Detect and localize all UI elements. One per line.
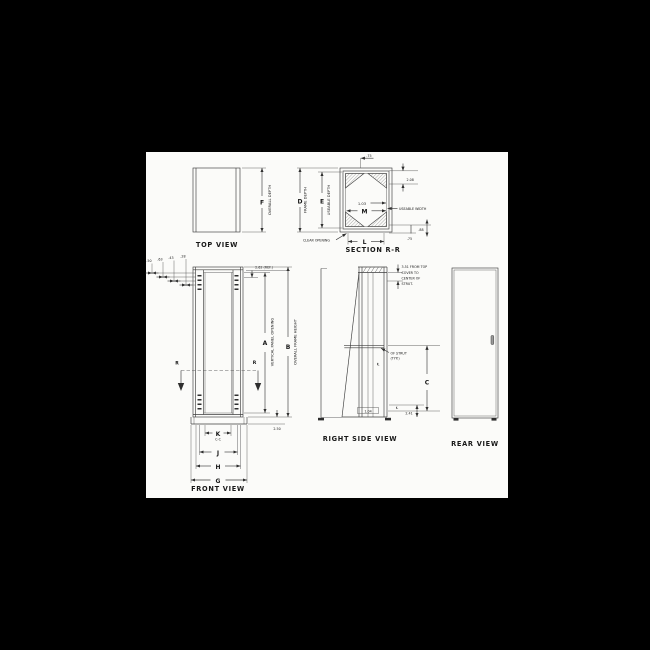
offset-dim-4: .28	[180, 255, 185, 259]
dim-label-f: F	[260, 200, 264, 207]
dim-label-a: A	[263, 340, 268, 347]
door-handle	[491, 336, 494, 345]
rear-foot-right	[492, 418, 497, 421]
top-note-line2: COVER TO	[402, 271, 420, 275]
offset-dim-3: .43	[168, 256, 173, 260]
offset-bottom-dim: .88	[418, 228, 423, 232]
strut-note-line1: OF STRUT	[391, 352, 408, 356]
top-flange-dim: .75	[366, 154, 371, 158]
dim-label-l: L	[363, 239, 367, 246]
top-note-line3: CENTER OF	[402, 276, 421, 280]
clear-opening-label: CLEAR OPENING	[303, 239, 330, 243]
overall-frame-height-label: OVERALL FRAME HEIGHT	[294, 318, 298, 364]
strut-note-line2: (TYP.)	[391, 357, 400, 361]
dim-label-j: J	[216, 450, 219, 457]
corner-depth-dim: 2.08	[407, 178, 414, 182]
rack-engineering-drawing: F OVERALL DEPTH TOP VIEW .75 D FRAME DEP…	[0, 0, 650, 650]
rear-view-title: REAR VIEW	[451, 440, 499, 448]
top-view-title: TOP VIEW	[196, 241, 238, 249]
foot-left	[318, 418, 324, 421]
dim-label-d: D	[298, 199, 303, 206]
section-marker-r-right: R	[253, 360, 257, 366]
dim-label-h: H	[215, 464, 220, 471]
right-side-view-title: RIGHT SIDE VIEW	[323, 435, 398, 443]
dim-label-b: B	[286, 344, 291, 351]
dim-label-m: M	[362, 208, 368, 215]
rear-foot-left	[454, 418, 459, 421]
overall-depth-label: OVERALL DEPTH	[268, 185, 272, 216]
k-note: C-C	[215, 437, 221, 441]
top-ref-dim: 2.62 (REF.)	[255, 266, 273, 270]
bottom-dim-241: 2.41	[405, 412, 412, 416]
dim-label-c: C	[425, 380, 430, 387]
dim-label-g: G	[216, 478, 221, 485]
foot-dim-104: 1.04	[364, 409, 371, 413]
drawing-canvas: F OVERALL DEPTH TOP VIEW .75 D FRAME DEP…	[0, 0, 650, 650]
flange-bottom-dim: .75	[407, 237, 412, 241]
useable-width-label: USEABLE WIDTH	[399, 207, 427, 211]
top-note-line4: STRUT.	[402, 282, 414, 286]
top-note-line1: 3.51 FROM TOP	[402, 265, 428, 269]
m-offset-dim: 1.03	[358, 202, 367, 206]
dim-label-e: E	[320, 199, 324, 206]
section-marker-r-left: R	[175, 361, 179, 367]
base-height-dim: 2.50	[273, 427, 280, 431]
offset-dim-1: .50	[146, 259, 151, 263]
vertical-panel-opening-label: VERTICAL PANEL OPENING	[271, 318, 275, 367]
offset-dim-2: .63	[157, 258, 162, 262]
frame-depth-label: FRAME DEPTH	[304, 187, 308, 213]
section-rr-title: SECTION R-R	[345, 246, 400, 254]
front-view-title: FRONT VIEW	[191, 485, 245, 493]
useable-depth-label: USEABLE DEPTH	[327, 185, 331, 216]
foot-right	[385, 418, 391, 421]
